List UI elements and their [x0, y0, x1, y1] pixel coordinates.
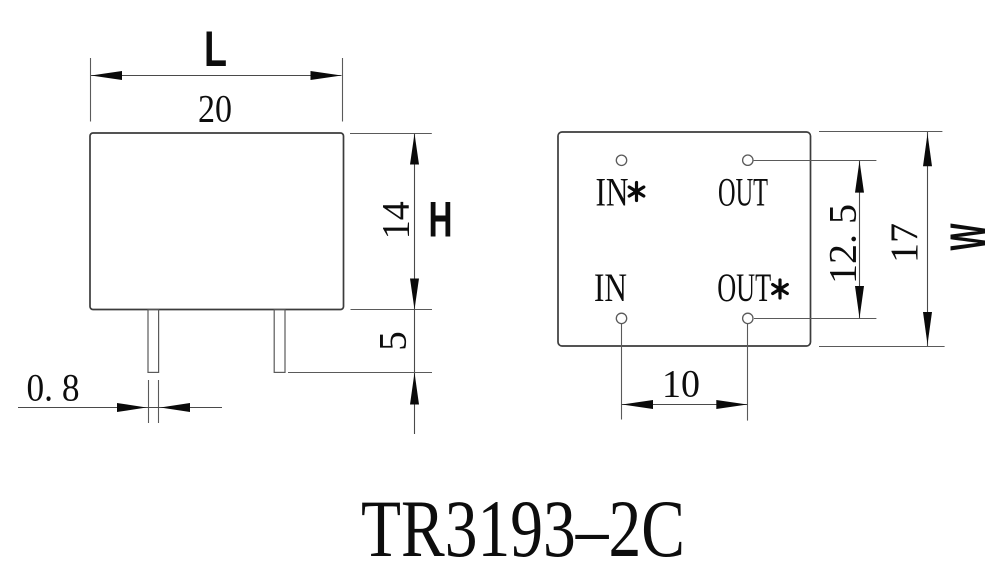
svg-text:H: H [429, 191, 453, 248]
svg-text:10: 10 [662, 363, 700, 406]
svg-text:W: W [939, 223, 996, 250]
svg-text:IN: IN [596, 169, 629, 214]
svg-text:IN: IN [594, 265, 627, 310]
svg-text:14: 14 [375, 201, 418, 239]
svg-text:OUT: OUT [717, 265, 771, 310]
svg-text:0. 8: 0. 8 [27, 367, 80, 410]
svg-text:L: L [204, 20, 227, 77]
svg-text:17: 17 [883, 223, 926, 263]
svg-text:12. 5: 12. 5 [822, 204, 865, 284]
svg-text:20: 20 [198, 88, 232, 131]
svg-text:5: 5 [372, 331, 415, 351]
svg-text:TR3193–2C: TR3193–2C [361, 483, 685, 574]
svg-text:OUT: OUT [718, 169, 768, 214]
